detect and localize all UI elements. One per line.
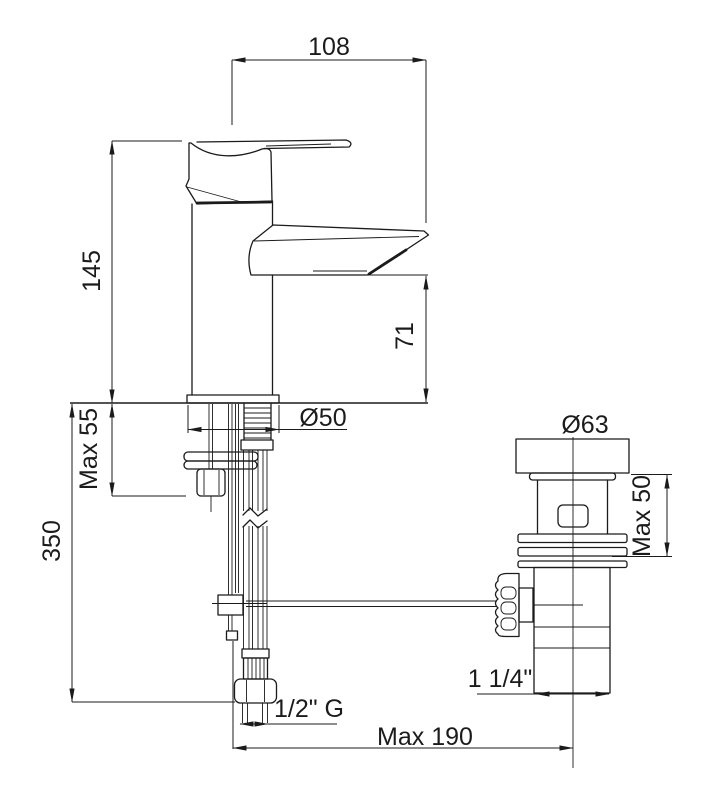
drain-drawing: [496, 437, 630, 768]
popup-rod: [229, 404, 233, 631]
dim-label-base-diameter: Ø50: [299, 404, 346, 432]
drain-slat-3: [518, 561, 627, 568]
drain-neck: [538, 480, 608, 534]
faucet-spout: [249, 225, 429, 275]
supply-hoses-lower: [244, 526, 268, 649]
faucet-shank-threads: [244, 408, 271, 438]
drain-body-joints: [534, 627, 610, 648]
hose-hex-nut: [235, 679, 277, 703]
faucet-shank-nut: [241, 440, 273, 450]
drain-slat-1: [518, 534, 627, 543]
popup-rod-sleeve: [236, 404, 239, 593]
dim-label-waste-outlet: 1 1/4": [468, 665, 532, 693]
faucet-spout-cut-edge: [369, 250, 406, 274]
supply-hoses-upper: [244, 450, 268, 511]
faucet-mounting-nut-facets: [204, 470, 219, 495]
hose-corrugation-ribs: [248, 658, 264, 679]
popup-rod-linkage-block: [218, 595, 243, 615]
faucet-shank: [244, 404, 271, 440]
hose-hex-nut-facets: [247, 680, 265, 702]
dim-label-max-waste-distance: Max 190: [377, 723, 473, 751]
dim-label-spout-height: 71: [391, 322, 419, 350]
technical-drawing-canvas: 108 145 71 Max 55 350 Ø50 Ø63 Max 50 1 1…: [0, 0, 711, 800]
dim-label-waste-max-deck: Max 50: [628, 475, 656, 557]
dim-label-spout-reach: 108: [308, 33, 350, 61]
faucet-body-column: [192, 201, 273, 395]
drain-body: [534, 568, 610, 694]
drain-knurl-slot-3: [501, 618, 516, 630]
hose-collar: [242, 649, 269, 658]
faucet-cap-bottom-edge: [197, 202, 271, 203]
drain-knurl-bracket: [519, 588, 533, 622]
faucet-washer-lower: [184, 461, 257, 469]
hose-break-symbol: [243, 508, 267, 528]
faucet-mounting-nut: [197, 469, 225, 496]
popup-rod-end-cap: [227, 631, 238, 640]
faucet-base-plate: [187, 395, 279, 403]
technical-drawing-page: 108 145 71 Max 55 350 Ø50 Ø63 Max 50 1 1…: [0, 0, 711, 800]
dim-label-max-deck: Max 55: [75, 408, 103, 490]
faucet-handle-cap: [186, 143, 272, 204]
hose-thread-end: [243, 703, 268, 723]
dim-label-total-height: 145: [78, 250, 106, 292]
dimension-annotations: 108 145 71 Max 55 350 Ø50 Ø63 Max 50 1 1…: [38, 33, 672, 751]
dim-label-supply-length: 350: [38, 520, 66, 562]
faucet-handle-chamfer: [187, 187, 245, 203]
faucet-spout-top-face-line: [254, 237, 419, 242]
drain-knurl-slot-2: [501, 602, 516, 614]
dim-label-supply-thread: 1/2" G: [274, 695, 344, 723]
drain-slat-2: [518, 548, 627, 557]
drain-flange: [516, 439, 629, 473]
faucet-lever-inner-line: [266, 144, 331, 146]
faucet-washer-upper: [184, 452, 258, 461]
dim-label-waste-diameter: Ø63: [561, 411, 608, 439]
drain-knurl-slot-1: [501, 587, 516, 599]
popup-linkage-rod: [212, 601, 497, 607]
drain-flange-lip: [530, 473, 616, 480]
